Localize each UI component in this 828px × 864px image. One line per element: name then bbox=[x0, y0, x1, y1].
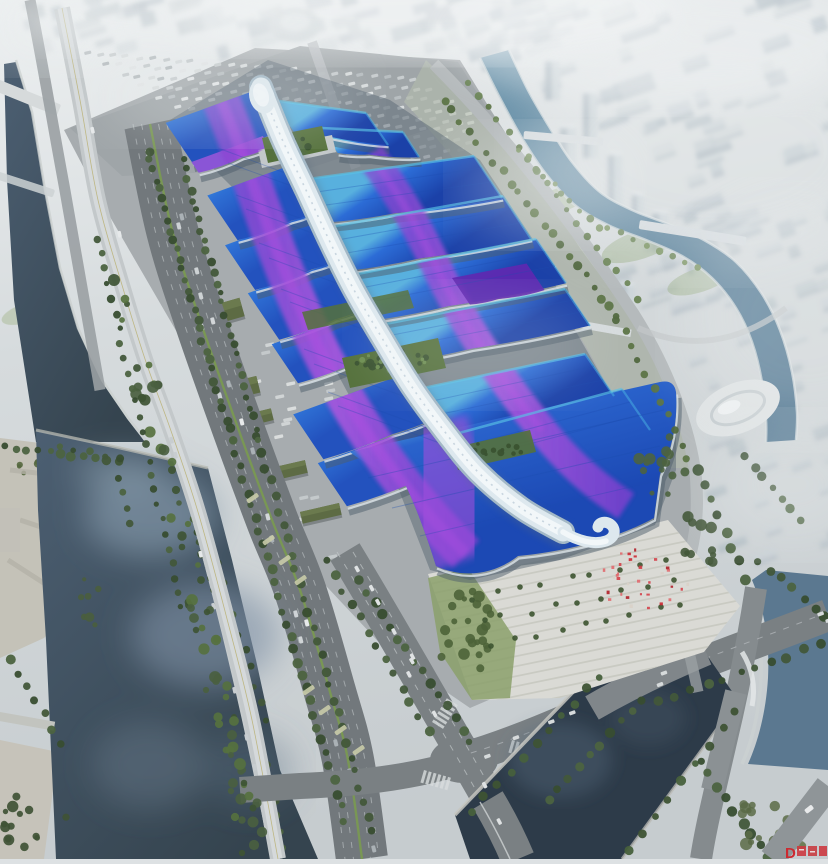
svg-text:D: D bbox=[785, 845, 796, 859]
